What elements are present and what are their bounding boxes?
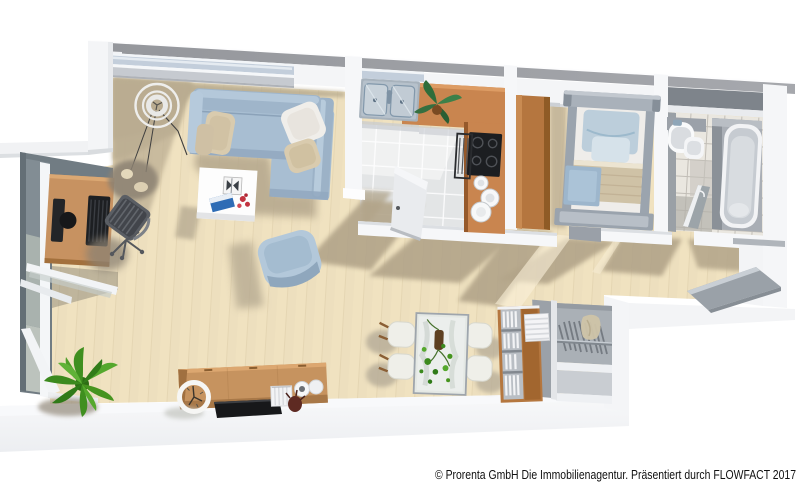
svg-text:© Prorenta GmbH Die Immobilien: © Prorenta GmbH Die Immobilienagentur. P… bbox=[435, 467, 796, 482]
